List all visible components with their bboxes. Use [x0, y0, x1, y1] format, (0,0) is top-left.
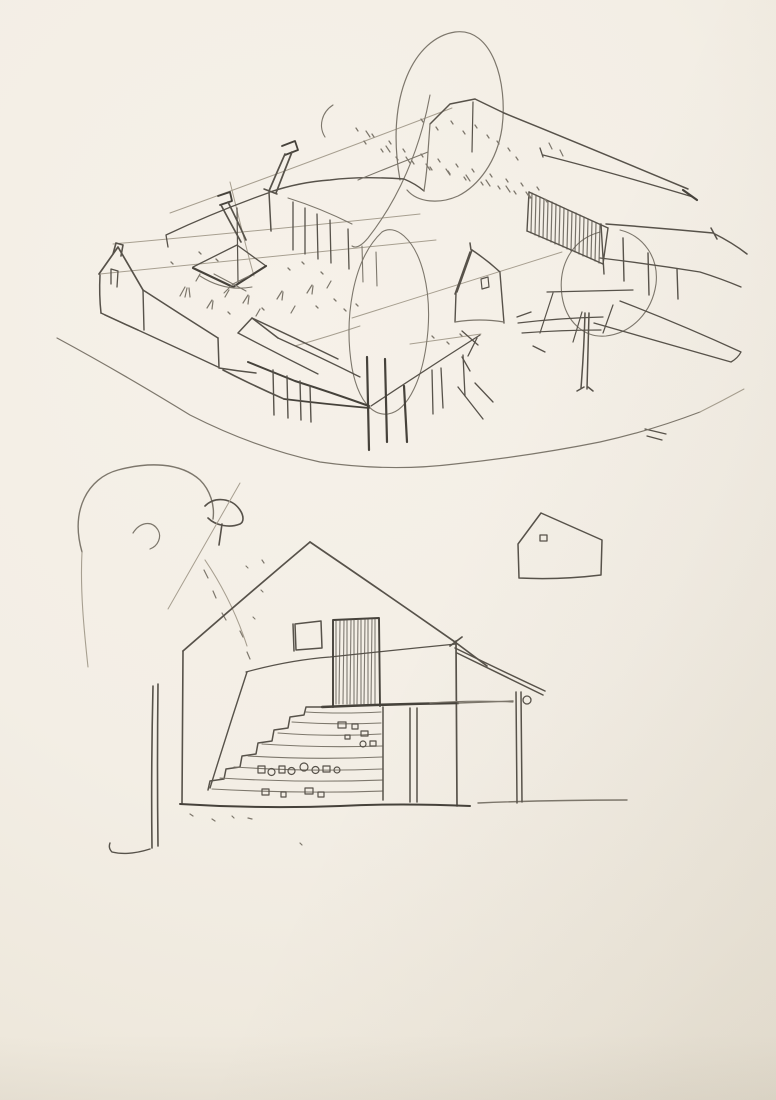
middle-wing-posts — [432, 355, 465, 414]
hatched-block-hatching — [336, 619, 375, 704]
leanto-roof-bottom — [600, 258, 741, 287]
courtyard-wall-top — [143, 290, 218, 338]
ground-line — [180, 804, 470, 807]
center-gable-right — [470, 243, 500, 272]
cottage-left-wall — [100, 275, 101, 313]
barn-peak — [430, 99, 504, 124]
leanto-roof — [455, 648, 545, 695]
middle-wing-rafters — [458, 338, 493, 419]
tree-base — [109, 843, 150, 853]
house-outline — [518, 513, 602, 579]
center-gable-window — [481, 277, 489, 289]
pool-spokes — [214, 274, 249, 293]
tree-canopy-tail — [81, 552, 88, 667]
trellis-lines — [518, 290, 633, 333]
middle-wing-posts-dark — [367, 357, 407, 450]
ground-line-right — [478, 800, 627, 803]
double-column — [410, 708, 417, 802]
guide-line — [113, 214, 420, 244]
left-wall — [182, 651, 183, 804]
courtyard-wall-bottom — [105, 315, 218, 367]
guide-line — [100, 240, 436, 274]
hatched-wall-hatching — [531, 193, 600, 263]
leanto-post — [516, 692, 522, 803]
leanto-post-knob — [523, 696, 531, 704]
barn-left-edge — [424, 124, 430, 191]
barn-flagpole — [472, 102, 473, 152]
cottage-right-wall — [143, 290, 144, 330]
foliage-ticks — [204, 560, 264, 659]
left-wing-base — [223, 370, 284, 399]
left-wing-ridge — [252, 318, 338, 359]
gable-left-slope — [183, 542, 310, 651]
tree-scribble — [349, 230, 428, 415]
small-tree-trunk — [577, 313, 593, 391]
roof-planting-dots — [356, 119, 547, 202]
tree-canopy-inner — [133, 524, 160, 549]
tree-scribble — [352, 95, 430, 247]
axon-sketch — [57, 32, 747, 468]
courtyard-dots — [171, 252, 462, 344]
green-roof-edge — [166, 193, 268, 247]
courtyard-grass-tufts — [180, 274, 331, 316]
chimney-body — [221, 202, 246, 242]
colonnade-posts — [293, 202, 349, 269]
window-square — [293, 621, 322, 651]
right-wall — [450, 637, 462, 806]
barn-ridge — [504, 113, 688, 189]
equals-dash — [645, 429, 666, 440]
stairs-profile — [208, 707, 322, 790]
barn-near-eave — [358, 152, 428, 180]
sketch-canvas — [0, 0, 776, 1100]
guide-line — [170, 108, 452, 213]
photographed-sketch-page — [0, 0, 776, 1100]
stray-dots — [246, 566, 263, 619]
guide-line — [352, 252, 562, 318]
ground-sweep — [57, 338, 700, 468]
center-gable-left — [455, 250, 472, 294]
section-sketch — [78, 465, 627, 854]
house-pictogram — [518, 513, 602, 579]
inner-slope — [210, 672, 247, 788]
tree-leaf-cluster — [205, 500, 243, 545]
leanto-roof-top — [606, 224, 747, 254]
tread-objects — [258, 763, 340, 776]
pool-outline-dark — [193, 266, 266, 287]
chimney-foot — [264, 189, 277, 231]
colonnade-posts-faint — [362, 246, 377, 286]
ground-sweep-faint — [700, 389, 744, 412]
tree-guideline — [168, 483, 240, 609]
tree-trunk — [152, 684, 158, 848]
terrace-band — [594, 301, 741, 362]
colonnade-beam — [288, 198, 352, 224]
center-gable-walls — [455, 273, 504, 323]
tree-scribble — [396, 32, 503, 201]
tree-canopy — [78, 465, 213, 552]
house-window — [540, 535, 547, 541]
floor-line-heavy — [322, 703, 458, 707]
chimney-cap — [282, 141, 298, 155]
cottage-gable — [99, 247, 143, 290]
under-ground-marks — [190, 814, 302, 845]
center-gable-base — [455, 320, 504, 322]
tree-scribble — [322, 105, 333, 137]
guide-line — [295, 326, 481, 346]
leanto-posts — [601, 224, 678, 299]
middle-wing-base — [284, 399, 369, 408]
courtyard-wall-corner — [218, 338, 256, 373]
chimney-cap — [218, 192, 232, 205]
cottage-door — [111, 269, 118, 287]
